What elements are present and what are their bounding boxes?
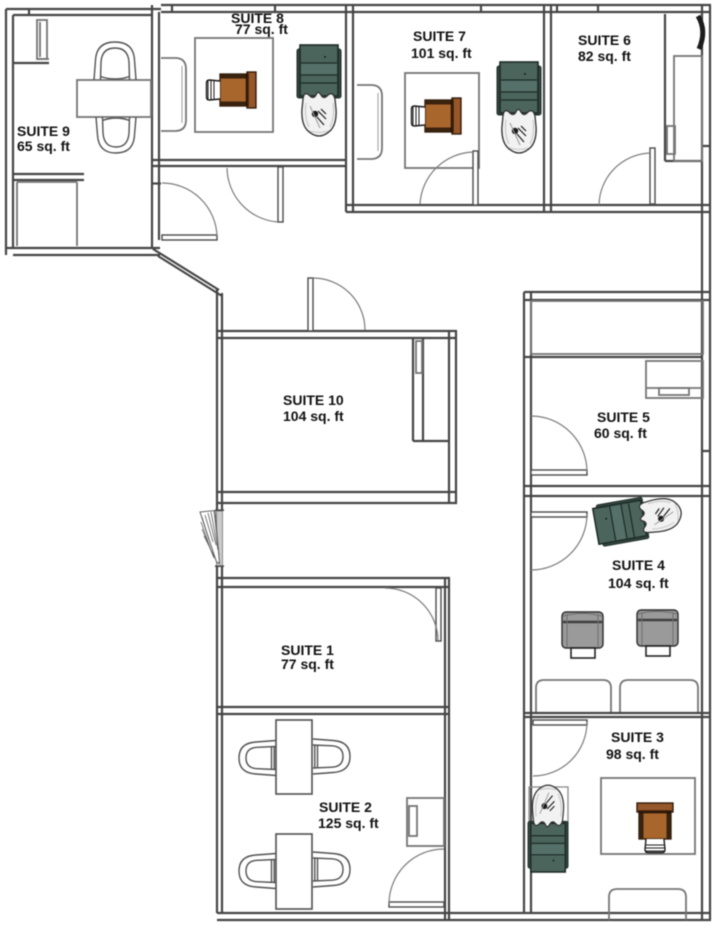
svg-text:SUITE 6: SUITE 6: [578, 32, 631, 48]
svg-text:SUITE 2: SUITE 2: [319, 799, 372, 815]
svg-text:101 sq. ft: 101 sq. ft: [411, 45, 472, 61]
svg-text:SUITE 9: SUITE 9: [17, 123, 70, 139]
svg-text:82 sq. ft: 82 sq. ft: [578, 48, 631, 64]
svg-text:SUITE 3: SUITE 3: [611, 729, 664, 745]
svg-text:SUITE 7: SUITE 7: [413, 28, 466, 44]
svg-text:60 sq. ft: 60 sq. ft: [594, 425, 647, 441]
svg-text:SUITE 10: SUITE 10: [283, 392, 344, 408]
svg-text:SUITE 4: SUITE 4: [612, 557, 665, 573]
svg-text:98 sq. ft: 98 sq. ft: [606, 746, 659, 762]
svg-text:125 sq. ft: 125 sq. ft: [318, 815, 379, 831]
svg-text:77 sq. ft: 77 sq. ft: [235, 21, 288, 37]
svg-text:104 sq. ft: 104 sq. ft: [283, 408, 344, 424]
svg-text:65 sq. ft: 65 sq. ft: [17, 138, 70, 154]
svg-text:104 sq. ft: 104 sq. ft: [608, 575, 669, 591]
svg-text:SUITE 5: SUITE 5: [597, 409, 650, 425]
svg-text:77 sq. ft: 77 sq. ft: [281, 656, 334, 672]
